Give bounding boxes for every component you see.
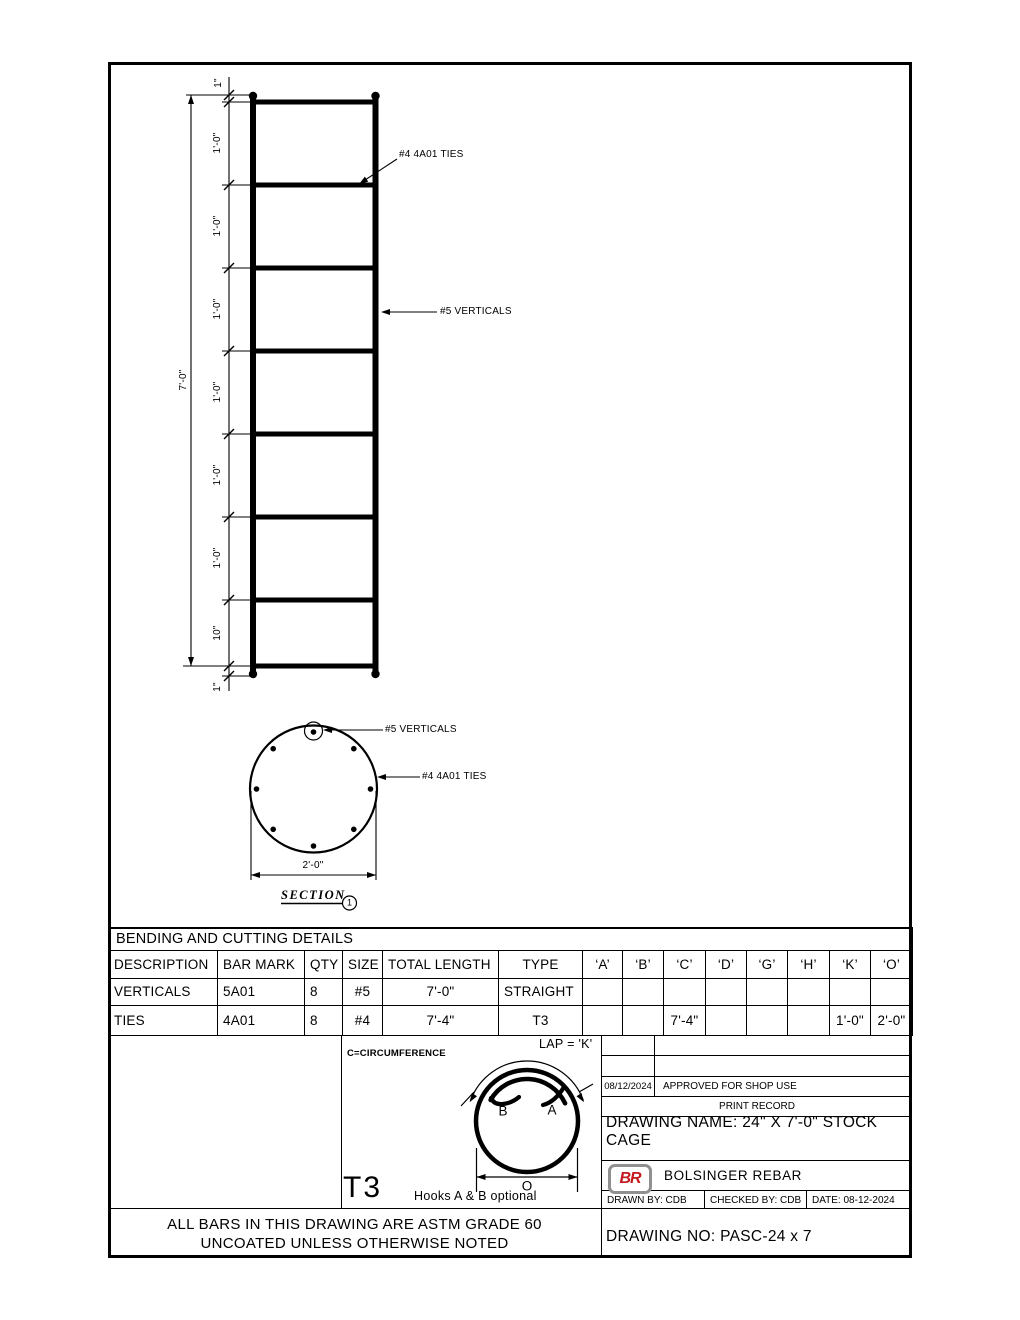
sheet-border [108,62,912,1258]
shop-drawing-page: 1" 1'-0" 1'-0" 1'-0" 1'-0" 1'-0" 1'-0" 1… [0,0,1020,1320]
